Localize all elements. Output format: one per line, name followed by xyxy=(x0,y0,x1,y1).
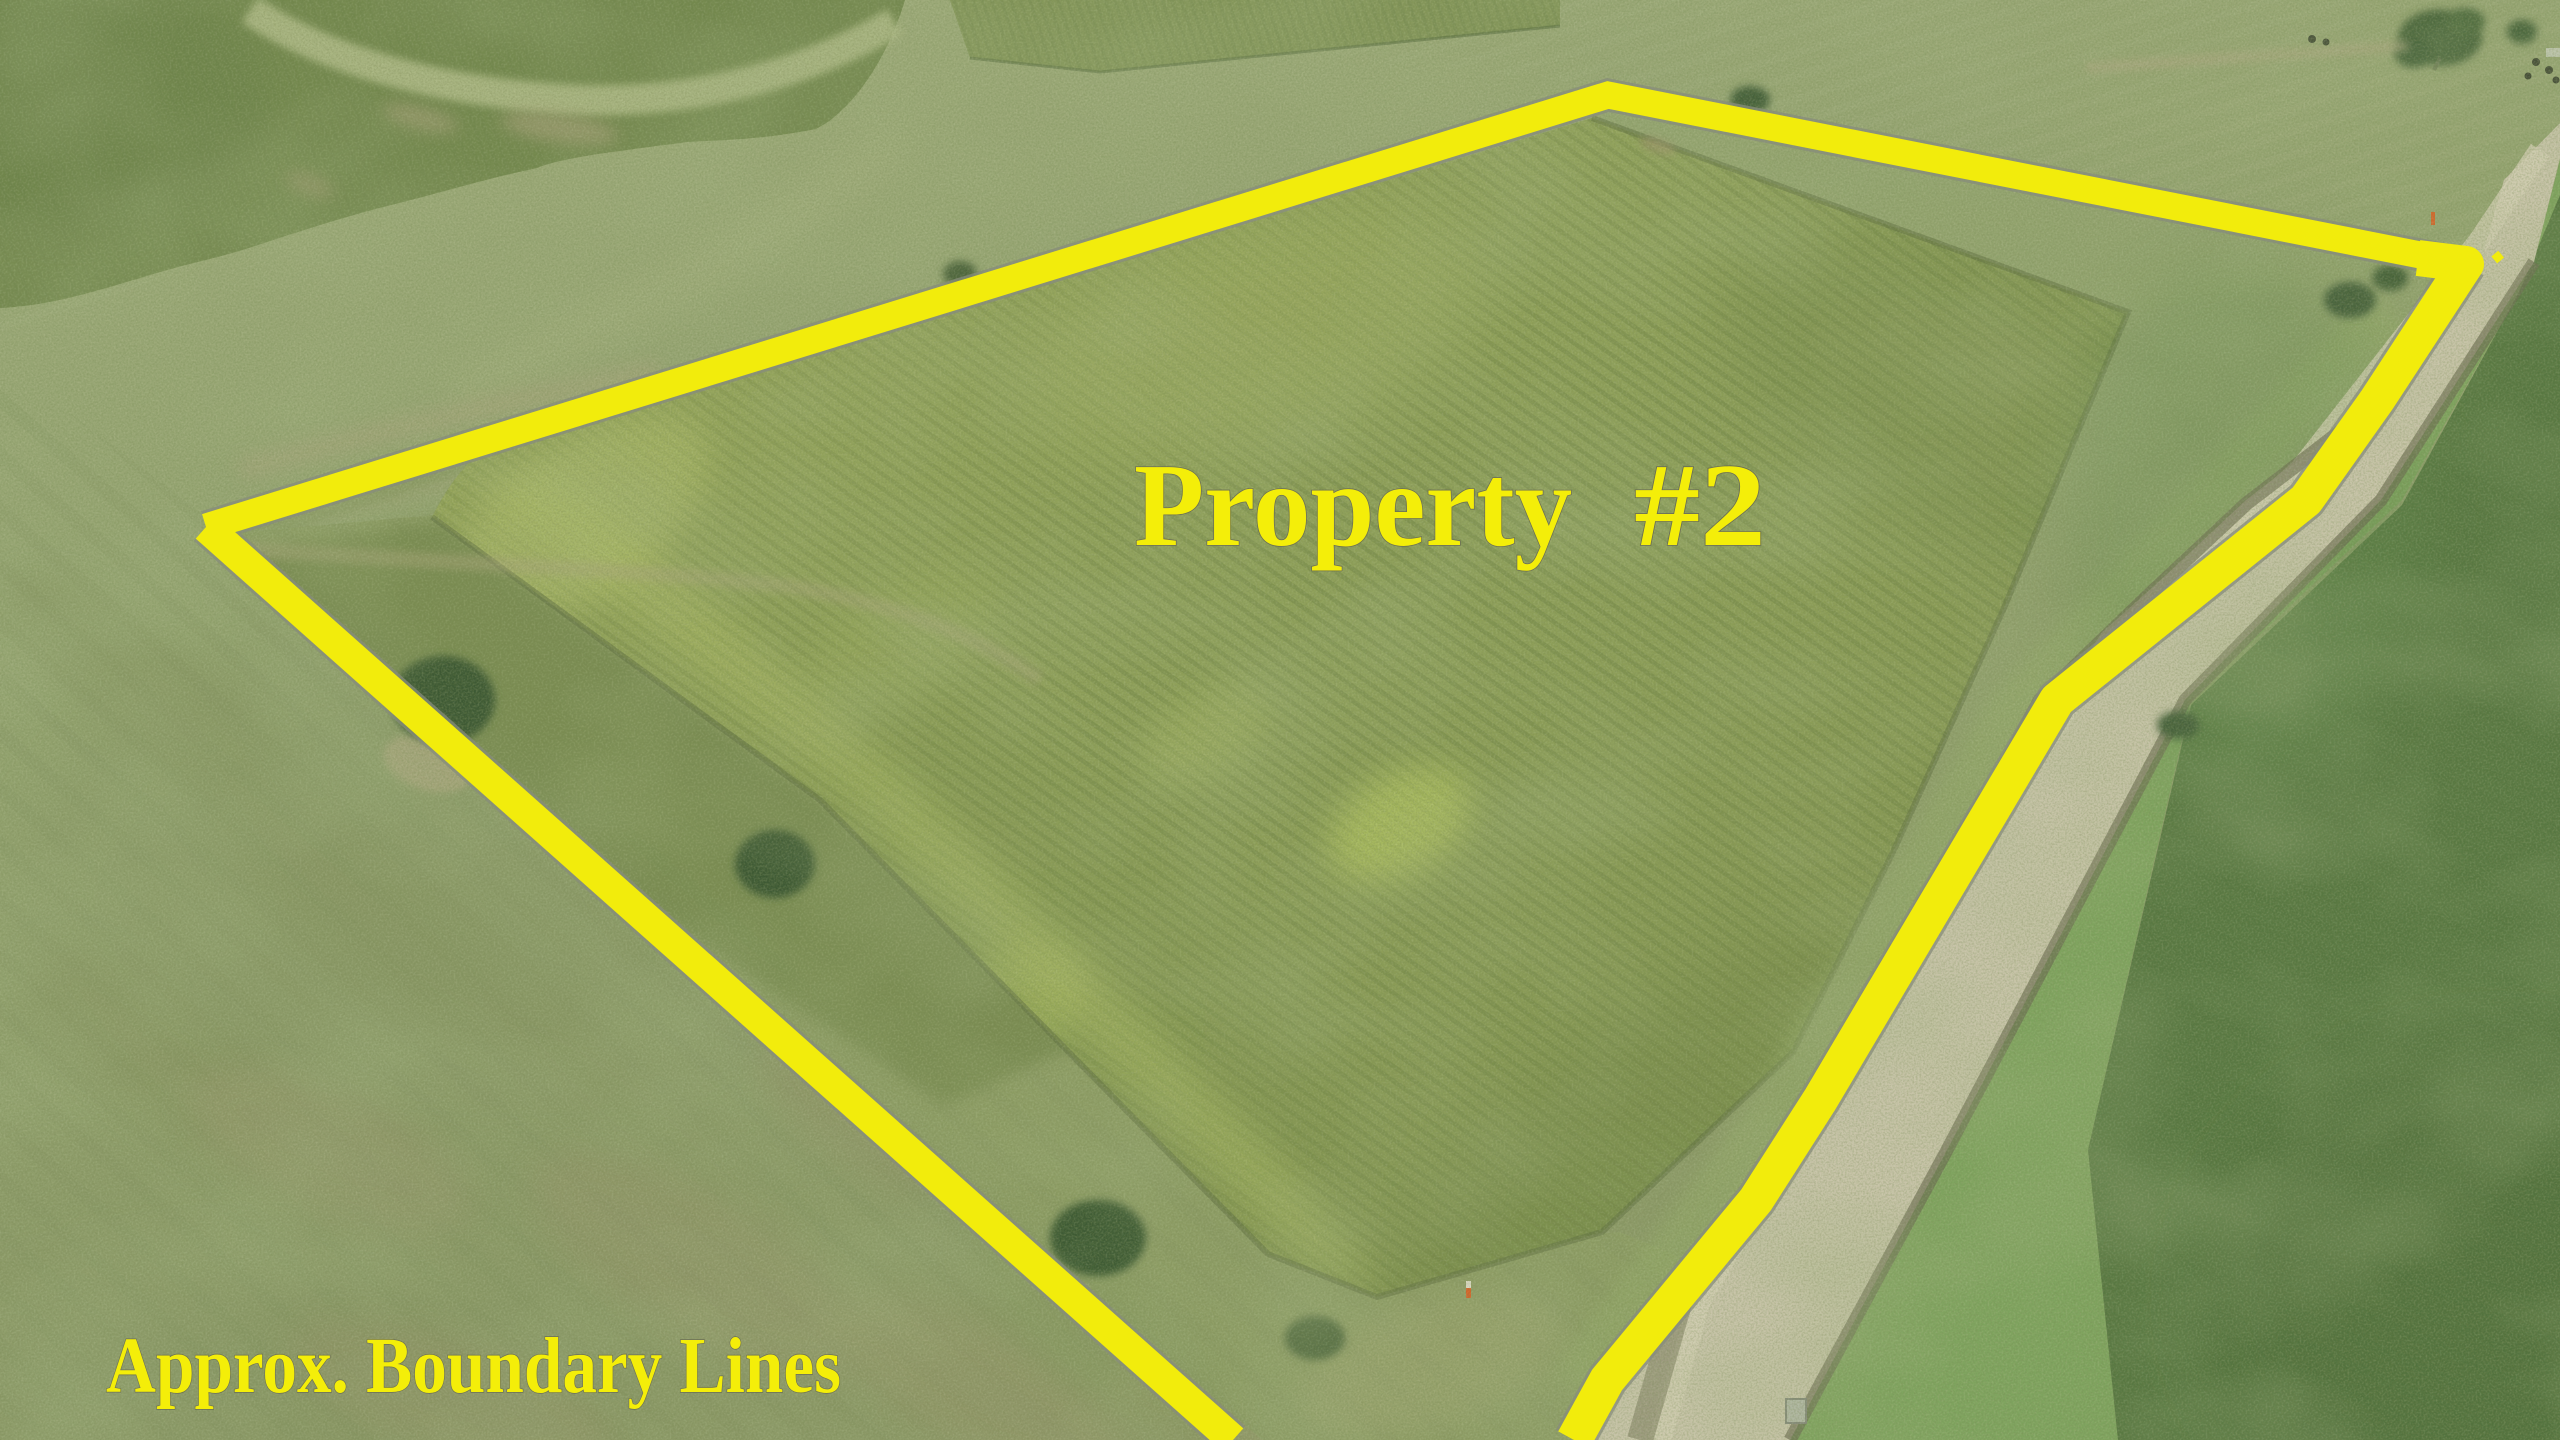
svg-text:Property: Property xyxy=(1134,439,1572,571)
svg-text:Approx. Boundary Lines: Approx. Boundary Lines xyxy=(106,1323,841,1410)
svg-text:#2: #2 xyxy=(1634,439,1766,571)
